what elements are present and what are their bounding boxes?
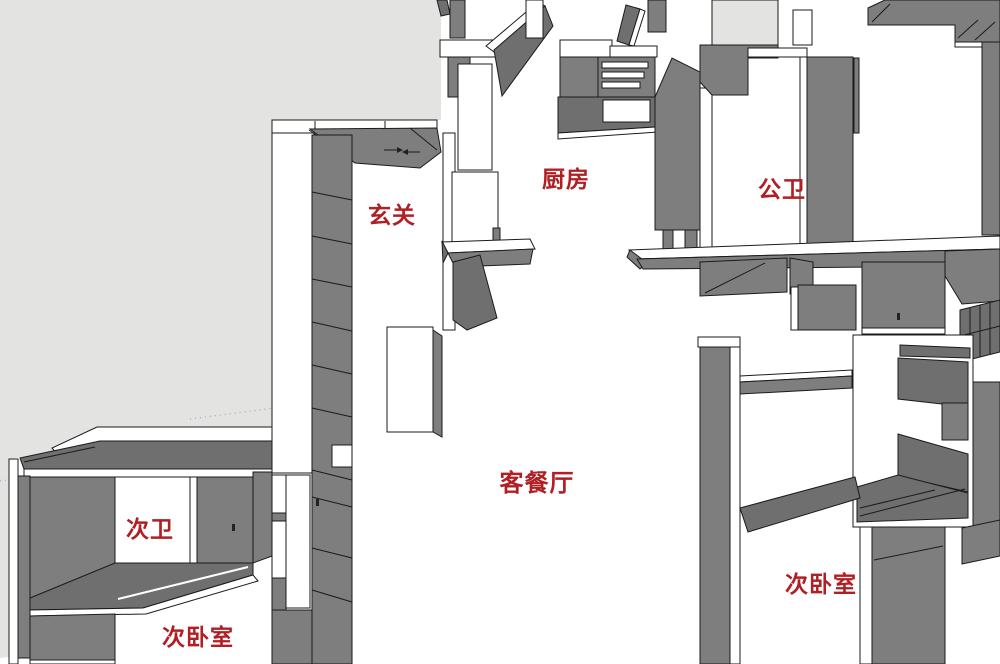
wall-top-band	[30, 660, 115, 664]
wall-top-band	[610, 46, 657, 57]
doorway-gap	[286, 475, 310, 608]
bath-east-wall	[197, 477, 253, 563]
room-label: 次卧室	[785, 571, 857, 597]
wall-top-band	[862, 328, 945, 334]
wall-top-band	[955, 42, 982, 47]
wall-top-band	[700, 88, 712, 248]
counter-sink	[603, 100, 650, 122]
east-wall	[982, 42, 1000, 235]
wall-face	[272, 513, 286, 521]
wall-corner-block	[453, 255, 497, 330]
wall-face	[272, 578, 286, 610]
wall-top-band	[748, 48, 807, 57]
bath-east-wall	[807, 57, 853, 248]
door-jamb	[685, 230, 697, 250]
wall-face	[854, 58, 859, 133]
wall-top-band	[730, 347, 740, 664]
kitchen-cabinet	[452, 172, 498, 247]
room-label: 公卫	[758, 176, 806, 202]
shelf-step	[602, 72, 644, 78]
door-jamb	[663, 230, 673, 250]
door-handle	[316, 499, 319, 506]
wall-face	[253, 472, 272, 563]
wall-face	[450, 0, 465, 38]
wall-face	[272, 610, 312, 664]
kitchen-east-wall	[655, 58, 700, 230]
wall-notch	[332, 445, 352, 467]
wall-block	[798, 285, 856, 330]
wardrobe-divider	[942, 403, 968, 440]
wall-top-band	[860, 527, 872, 664]
shelf-step	[602, 82, 640, 88]
corridor-west-wall	[700, 347, 730, 664]
wall-face	[18, 476, 30, 658]
wall-face	[648, 0, 666, 32]
wall-top-band	[9, 459, 18, 664]
wall-top-band	[272, 475, 286, 578]
wall-top-band	[800, 57, 807, 248]
living-cabinet	[387, 327, 433, 432]
wall-face	[700, 258, 787, 296]
wall-block	[862, 262, 945, 328]
wall-top-band	[560, 40, 612, 57]
wall-face	[945, 249, 1000, 304]
room-label: 玄关	[368, 202, 416, 228]
wall-top-band	[440, 40, 497, 57]
cabinet-edge	[433, 330, 442, 437]
room-label: 次卧室	[162, 624, 234, 650]
floor-plan-3d-view: 玄关 厨房 公卫 客餐厅 次卫 次卧室 次卧室	[0, 0, 1000, 664]
bath-fixture	[793, 10, 812, 45]
wall-top-band	[698, 337, 740, 347]
wall-top-band	[24, 469, 272, 477]
wall-top-band	[190, 477, 197, 563]
wall-pillar	[526, 0, 543, 38]
bath-window-light	[712, 0, 778, 45]
wall-top-band	[272, 133, 314, 473]
room-label: 厨房	[542, 166, 590, 192]
wardrobe-panel	[898, 358, 968, 407]
floor-plan-canvas: 玄关 厨房 公卫 客餐厅 次卫 次卧室 次卧室	[0, 0, 1000, 664]
door-handle	[232, 524, 235, 531]
bedroom-north-wall	[30, 614, 115, 660]
shelf-step	[602, 62, 648, 68]
fridge-cabinet	[458, 64, 492, 170]
room-label: 客餐厅	[500, 469, 575, 497]
room-label: 次卫	[126, 516, 174, 542]
door-handle	[897, 313, 900, 320]
entry-west-wall	[312, 135, 352, 664]
bedroom-north-wall-top	[740, 477, 860, 532]
wall-face	[962, 520, 1000, 564]
wall-top-band	[791, 287, 798, 330]
